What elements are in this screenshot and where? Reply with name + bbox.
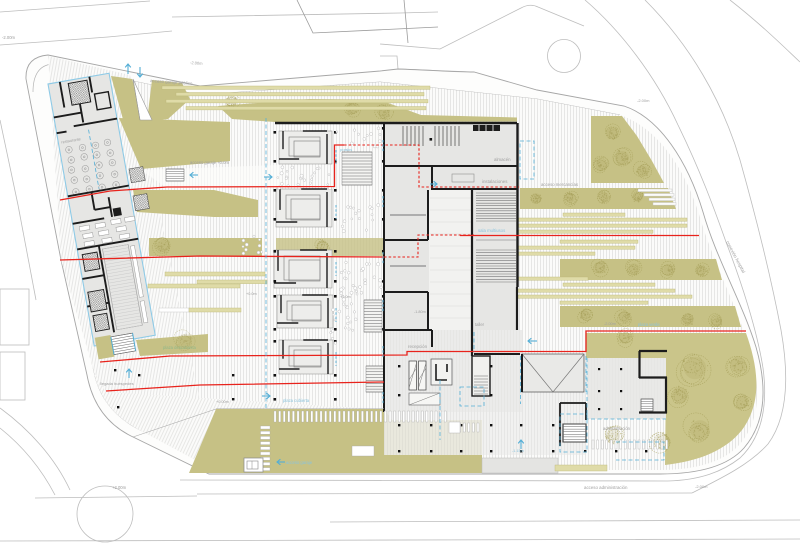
svg-text:-2.00m: -2.00m <box>2 35 16 40</box>
svg-text:-1.15m: -1.15m <box>512 449 524 453</box>
svg-text:acceso garaje: acceso garaje <box>286 460 313 465</box>
svg-text:+0.0m: +0.0m <box>246 292 257 296</box>
svg-text:acceso garaje +0.0m: acceso garaje +0.0m <box>190 160 230 165</box>
svg-text:almacén: almacén <box>494 157 511 162</box>
svg-text:-2.00m: -2.00m <box>604 322 616 326</box>
svg-text:-2.00m: -2.00m <box>190 60 203 66</box>
svg-text:administración: administración <box>603 426 631 431</box>
svg-text:recepción: recepción <box>408 344 428 349</box>
svg-text:sala multiusos: sala multiusos <box>478 228 505 233</box>
svg-text:+2.00m: +2.00m <box>112 485 127 490</box>
svg-text:-2.00m: -2.00m <box>695 484 708 489</box>
svg-text:plaza descubierta: plaza descubierta <box>163 345 196 350</box>
svg-text:instalaciones: instalaciones <box>482 179 508 184</box>
svg-text:-1.80m: -1.80m <box>414 310 426 314</box>
svg-text:+0.00m: +0.00m <box>216 400 229 404</box>
svg-text:llegada huéspedes: llegada huéspedes <box>100 381 134 386</box>
svg-text:plaza verde: plaza verde <box>638 322 660 327</box>
svg-text:+0.0m: +0.0m <box>340 295 351 299</box>
svg-text:taller: taller <box>475 322 485 327</box>
svg-text:acceso administración: acceso administración <box>584 485 628 490</box>
svg-text:acceso mercancías: acceso mercancías <box>541 182 578 187</box>
svg-text:prados: prados <box>340 147 352 152</box>
svg-text:plaza cubierta: plaza cubierta <box>283 398 310 403</box>
svg-text:-2.00m: -2.00m <box>637 98 650 103</box>
